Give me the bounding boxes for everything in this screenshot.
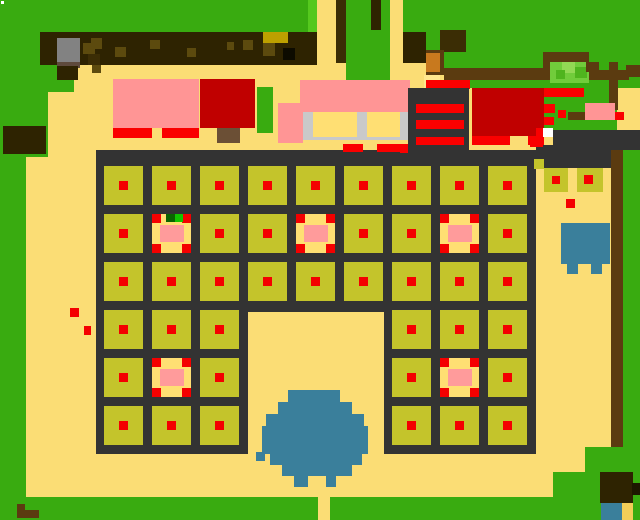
br-brown-block	[600, 472, 633, 503]
farm-plot-dot	[119, 277, 128, 286]
barn-stripe-3	[416, 137, 464, 145]
band-yellow-block	[263, 32, 288, 43]
br-yellow-px	[622, 503, 633, 520]
bush-px-3	[556, 70, 565, 79]
house-left-door-1	[113, 128, 152, 138]
special-plot-corner-1	[440, 358, 449, 367]
farm-plot-dot	[407, 277, 416, 286]
farm-plot-r3c3[interactable]	[200, 262, 239, 301]
grass-left-column	[0, 157, 26, 520]
terrace-bush-top	[551, 52, 589, 62]
band-black-px	[283, 48, 295, 60]
pig-red-px	[615, 112, 624, 120]
rock	[57, 38, 80, 64]
white-px	[543, 128, 553, 137]
farm-plot-dot	[503, 325, 512, 334]
fence-red-stripe-2	[544, 104, 555, 113]
special-plot-corner-3	[152, 388, 161, 397]
farm-plot-dot	[119, 181, 128, 190]
house-pink-left[interactable]	[113, 79, 199, 128]
blue-animal-leg-1	[567, 264, 578, 274]
fence-red-px-1	[558, 110, 566, 118]
white-dot-corner	[1, 1, 4, 4]
farm-plot-r6c2[interactable]	[152, 406, 191, 445]
farm-plot-dot	[119, 229, 128, 238]
special-plot-corner-1	[440, 214, 449, 223]
farm-plot-r3c7[interactable]	[392, 262, 431, 301]
farm-plot-dot	[455, 421, 464, 430]
farm-plot-r1c9[interactable]	[488, 166, 527, 205]
fence-red-stripe-3	[544, 117, 554, 125]
special-plot-corner-3	[296, 244, 305, 253]
farm-plot-dot	[503, 181, 512, 190]
special-plot-corner-2	[470, 214, 479, 223]
house-window-1	[313, 112, 357, 137]
farm-plot-r4c1[interactable]	[104, 310, 143, 349]
farm-plot-r3c5[interactable]	[296, 262, 335, 301]
farm-plot-r3c8[interactable]	[440, 262, 479, 301]
special-plot-corner-2	[326, 214, 335, 223]
pig[interactable]	[585, 103, 615, 120]
farm-plot-r1c5[interactable]	[296, 166, 335, 205]
pond-leg-2	[326, 476, 336, 487]
farm-plot-r6c9[interactable]	[488, 406, 527, 445]
grass-right-column	[623, 150, 640, 497]
farm-plot-r4c9[interactable]	[488, 310, 527, 349]
tree-band-spot-6	[243, 40, 253, 50]
farm-plot-dot	[503, 277, 512, 286]
farm-plot-r5c3[interactable]	[200, 358, 239, 397]
red-dot-left-1	[70, 308, 79, 317]
path-gap-bottom	[318, 497, 330, 520]
terrace-blob	[440, 30, 466, 52]
farm-map	[0, 0, 640, 520]
farm-plot-dot	[503, 229, 512, 238]
house-darkred-block[interactable]	[200, 79, 255, 128]
farm-plot-r3c4[interactable]	[248, 262, 287, 301]
special-plot-corner-3	[152, 244, 161, 253]
farm-plot-dot	[503, 421, 512, 430]
farm-plot-dot	[167, 325, 176, 334]
farm-plot-dot	[167, 181, 176, 190]
farm-plot-r2c4[interactable]	[248, 214, 287, 253]
farm-plot-dot	[503, 373, 512, 382]
farm-plot-dot	[215, 229, 224, 238]
special-plot-corner-1	[296, 214, 305, 223]
tree-band-spot-4	[187, 48, 196, 57]
farm-plot-dot	[311, 277, 320, 286]
farm-plot-dot	[119, 421, 128, 430]
blue-animal-body[interactable]	[561, 223, 610, 264]
fence-band-top-right	[553, 130, 640, 150]
pond-leg-1	[294, 476, 308, 487]
olive-px-corner	[534, 159, 544, 169]
farm-plot-dot	[407, 229, 416, 238]
farm-plot-r1c1[interactable]	[104, 166, 143, 205]
farm-plot-r4c3[interactable]	[200, 310, 239, 349]
brown-l-2	[17, 510, 39, 518]
dark-square-left	[3, 126, 46, 154]
farm-plot-dot	[407, 325, 416, 334]
farm-plot-r1c4[interactable]	[248, 166, 287, 205]
special-plot-corner-4	[470, 388, 479, 397]
farm-plot-dot	[407, 421, 416, 430]
farm-plot-dot	[455, 181, 464, 190]
farm-plot-dot	[359, 277, 368, 286]
special-plot-crop	[160, 369, 184, 386]
farm-plot-r1c6[interactable]	[344, 166, 383, 205]
farm-plot-r2c6[interactable]	[344, 214, 383, 253]
special-plot-crop	[160, 225, 184, 242]
special-plot-corner-1	[152, 358, 161, 367]
barn-stripe-2	[416, 120, 464, 129]
trunk-px-1	[83, 43, 95, 54]
house-window-2	[367, 112, 400, 137]
farm-plot-r2c9[interactable]	[488, 214, 527, 253]
sprout-dark-px	[166, 214, 175, 222]
special-plot-r2c2[interactable]	[152, 214, 191, 253]
special-plot-crop	[304, 225, 328, 242]
farm-plot-dot	[311, 181, 320, 190]
dirt-px	[568, 112, 585, 120]
special-plot-r2c8[interactable]	[440, 214, 479, 253]
farm-plot-r3c6[interactable]	[344, 262, 383, 301]
fence-red-stripe-1	[544, 88, 584, 97]
farm-plot-r4c8[interactable]	[440, 310, 479, 349]
farm-plot-dot	[359, 181, 368, 190]
farm-plot-r1c3[interactable]	[200, 166, 239, 205]
grass-top-right	[403, 0, 640, 52]
tree-band-spot-2	[115, 47, 126, 57]
band-yellow-px	[263, 43, 275, 56]
tree-px-top	[371, 0, 381, 30]
red-dot-left-2	[84, 326, 91, 335]
tree-band-spot-3	[150, 40, 160, 49]
farm-plot-dot	[455, 325, 464, 334]
red-px-b	[530, 138, 543, 147]
farm-plot-dot	[263, 229, 272, 238]
terrace-orange	[426, 53, 440, 72]
farm-plot-r6c3[interactable]	[200, 406, 239, 445]
blue-animal-leg-2	[591, 264, 602, 274]
farm-plot-r5c9[interactable]	[488, 358, 527, 397]
farm-plot-r1c8[interactable]	[440, 166, 479, 205]
farm-plot-dot	[215, 325, 224, 334]
pond-row-4	[262, 426, 368, 454]
farm-plot-dot	[215, 421, 224, 430]
special-plot-r2c5[interactable]	[296, 214, 335, 253]
farm-plot-dot	[215, 181, 224, 190]
trunk-px-3	[92, 65, 101, 73]
special-plot-corner-4	[182, 244, 191, 253]
pond-row-6	[282, 464, 352, 476]
farm-plot-dot	[263, 277, 272, 286]
farm-plot-r6c1[interactable]	[104, 406, 143, 445]
special-plot-corner-4	[470, 244, 479, 253]
special-plot-r5c2[interactable]	[152, 358, 191, 397]
farm-plot-r2c3[interactable]	[200, 214, 239, 253]
br-dark-px	[632, 483, 640, 495]
special-plot-corner-2	[182, 358, 191, 367]
special-plot-corner-2	[470, 358, 479, 367]
farm-plot-r1c2[interactable]	[152, 166, 191, 205]
tree-band-spot-5	[227, 42, 234, 50]
farm-plot-dot	[263, 181, 272, 190]
special-plot-corner-1	[152, 214, 161, 223]
house-pink-wing	[278, 103, 303, 143]
special-plot-corner-3	[440, 244, 449, 253]
farm-plot-dot	[359, 229, 368, 238]
band-right-piece	[403, 32, 426, 63]
farm-plot-dot	[407, 373, 416, 382]
special-plot-crop	[448, 369, 472, 386]
br-blue-px	[601, 503, 622, 520]
grass-bright-strip	[308, 0, 317, 32]
special-plot-corner-4	[326, 244, 335, 253]
trunk-px-2	[88, 54, 100, 65]
farm-plot-dot	[119, 325, 128, 334]
farm-plot-r5c1[interactable]	[104, 358, 143, 397]
farm-plot-r4c7[interactable]	[392, 310, 431, 349]
house-left-door-2	[162, 128, 199, 138]
house-pink-main[interactable]	[300, 80, 410, 112]
terrace-h1	[444, 68, 544, 80]
farm-plot-r3c2[interactable]	[152, 262, 191, 301]
special-plot-corner-4	[182, 388, 191, 397]
farm-plot-r4c2[interactable]	[152, 310, 191, 349]
special-plot-r5c8[interactable]	[440, 358, 479, 397]
farm-plot-dot	[215, 277, 224, 286]
farm-plot-dot	[455, 277, 464, 286]
tree-center	[257, 87, 273, 133]
side-plot-2-dot	[584, 175, 593, 184]
red-px-c	[400, 145, 408, 153]
farm-plot-dot	[407, 181, 416, 190]
farm-plot-r6c7[interactable]	[392, 406, 431, 445]
red-dot-right	[566, 199, 575, 208]
terrace-right-px	[626, 65, 640, 77]
farm-plot-dot	[167, 277, 176, 286]
special-plot-corner-3	[440, 388, 449, 397]
farm-plot-dot	[215, 373, 224, 382]
barn-stripe-1	[416, 104, 464, 113]
pond-stray-px	[256, 452, 265, 461]
farm-plot-dot	[119, 373, 128, 382]
farm-plot-r2c1[interactable]	[104, 214, 143, 253]
farm-plot-r2c7[interactable]	[392, 214, 431, 253]
tree-trunk-col	[336, 0, 346, 63]
sprout-bright-px	[175, 214, 183, 222]
house-main-door-1	[343, 144, 363, 152]
farm-plot-r3c9[interactable]	[488, 262, 527, 301]
barn-roof[interactable]	[472, 88, 544, 136]
special-plot-crop	[448, 225, 472, 242]
dirt-line-right	[611, 150, 623, 447]
farm-plot-dot	[167, 421, 176, 430]
tree-trunk-center	[217, 128, 240, 143]
farm-plot-r3c1[interactable]	[104, 262, 143, 301]
red-px-a	[536, 128, 543, 137]
rock-base	[57, 66, 78, 80]
farm-plot-r6c8[interactable]	[440, 406, 479, 445]
side-plot-1-dot	[552, 176, 560, 184]
farm-plot-r1c7[interactable]	[392, 166, 431, 205]
barn-base-strip-1	[472, 136, 510, 145]
special-plot-corner-2	[182, 214, 191, 223]
farm-plot-r5c7[interactable]	[392, 358, 431, 397]
